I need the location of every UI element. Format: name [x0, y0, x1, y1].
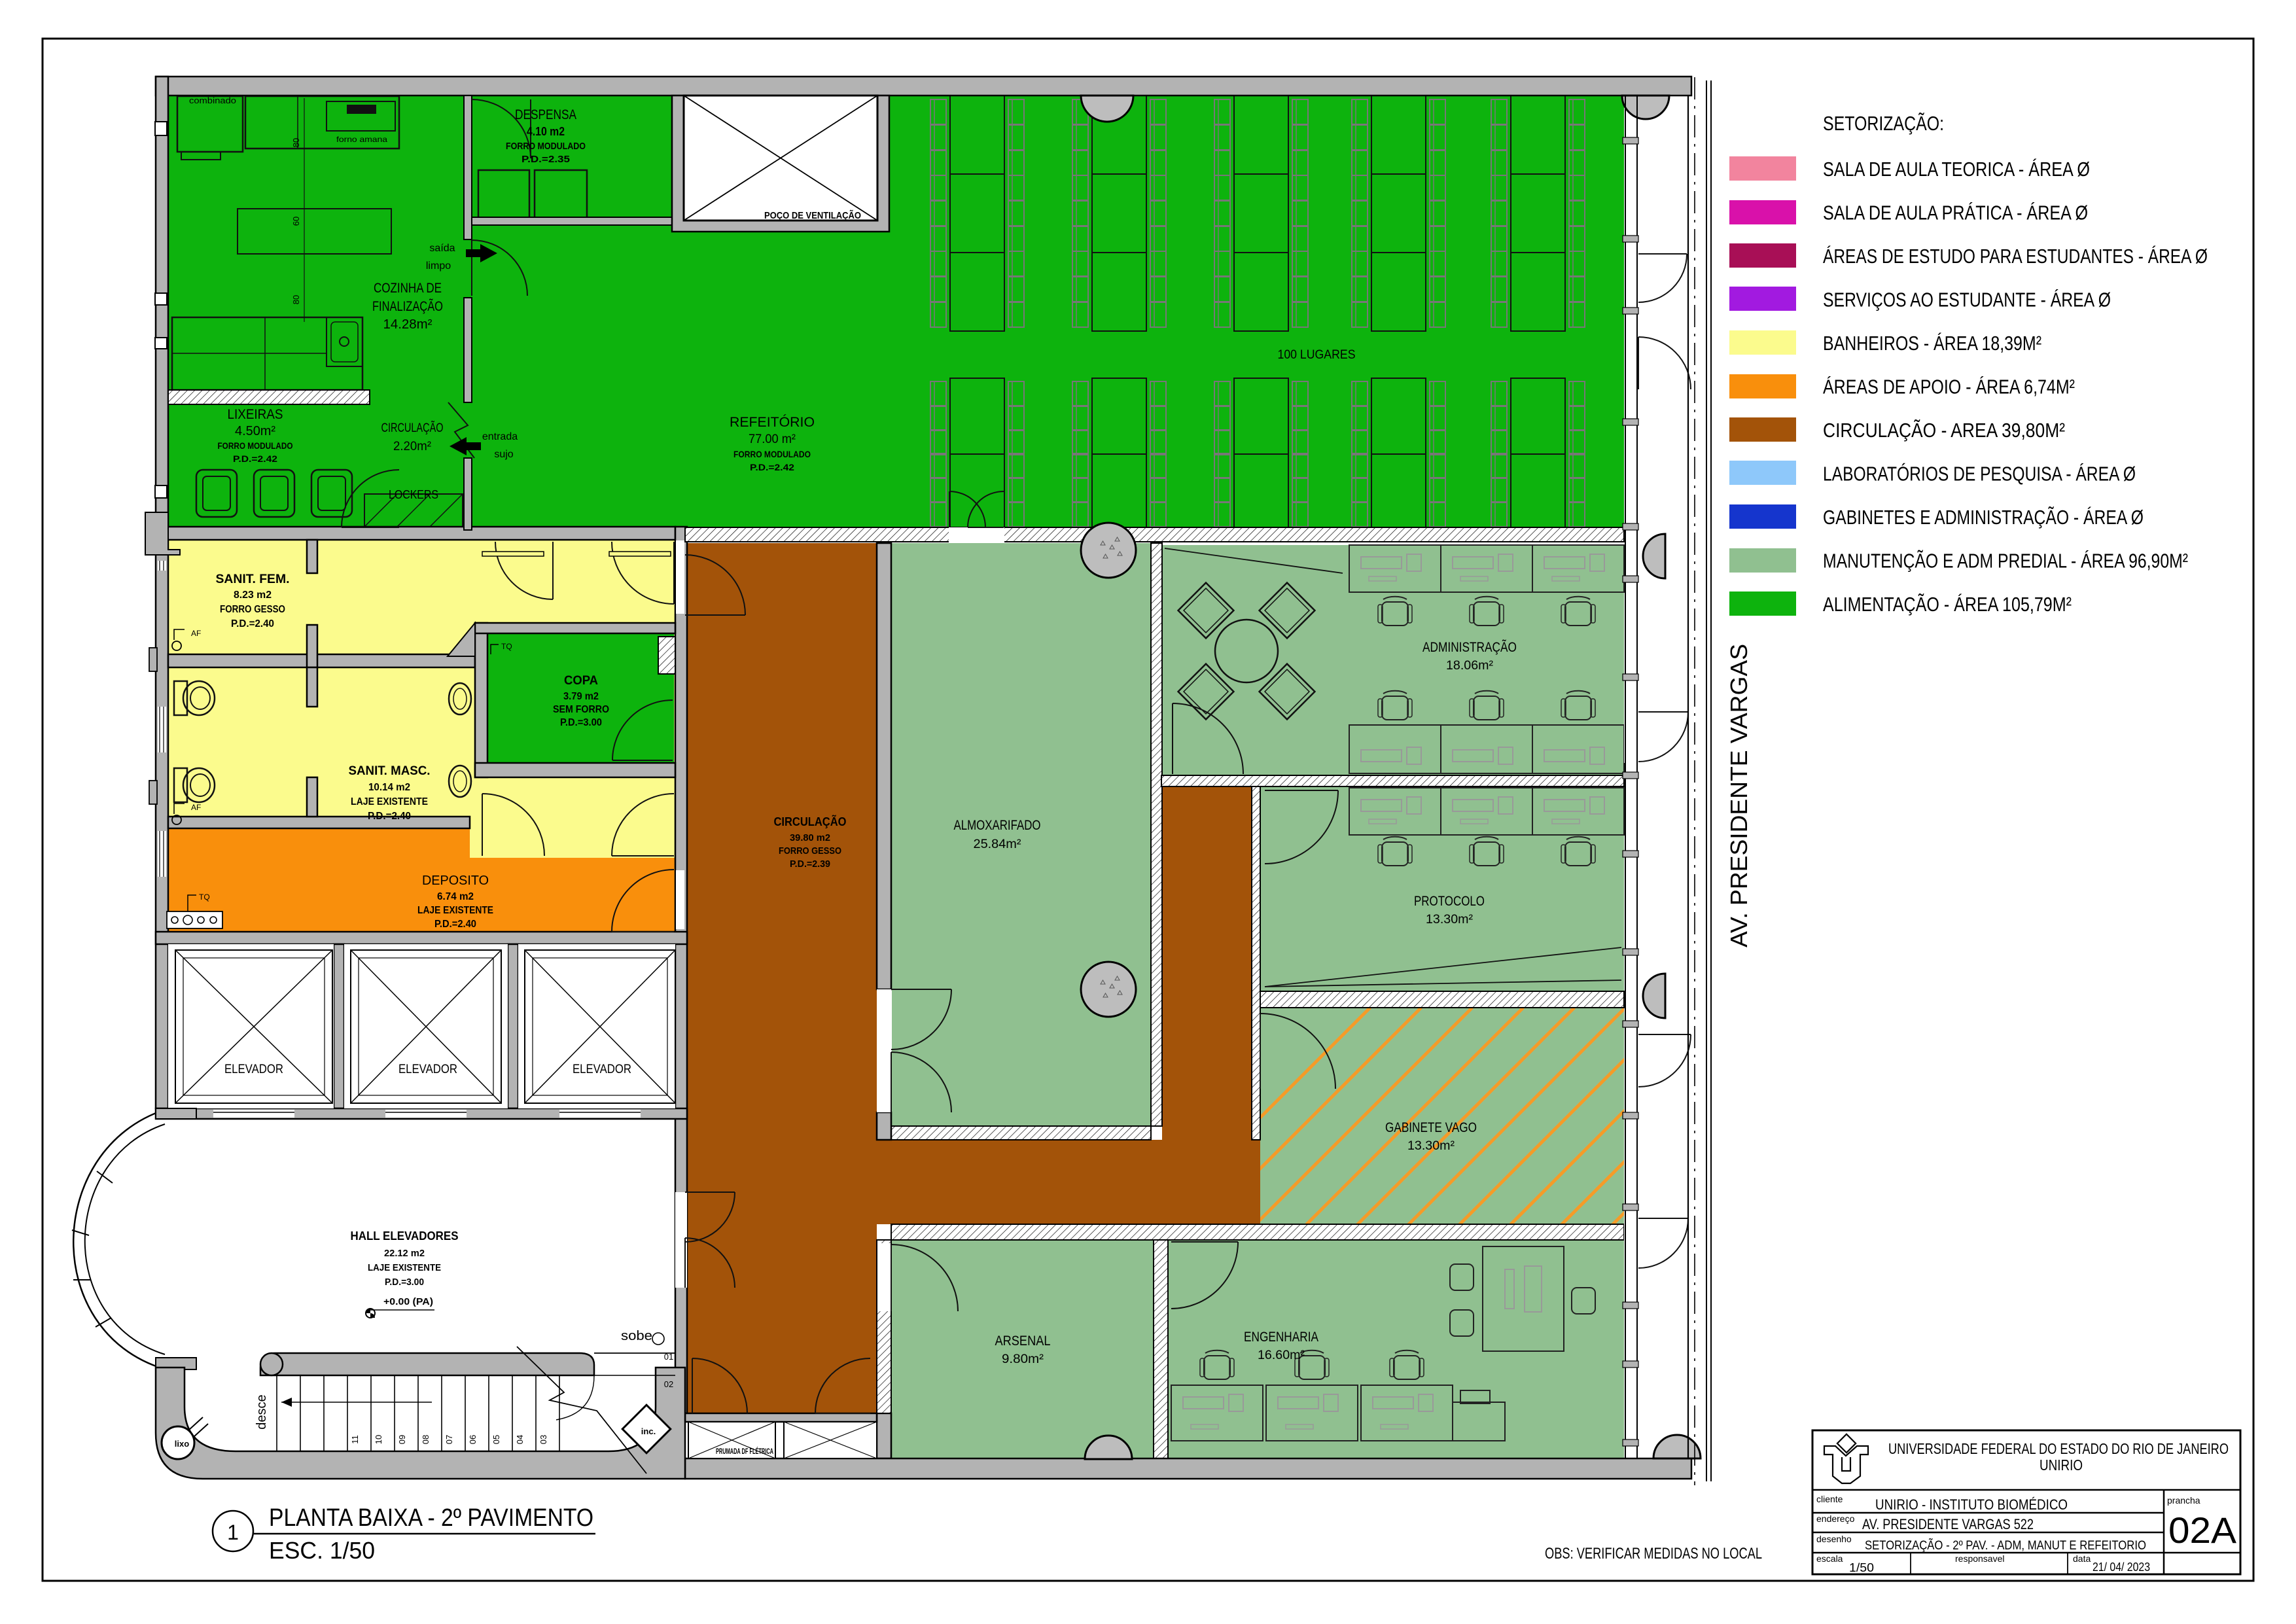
svg-text:06: 06 [468, 1435, 478, 1444]
svg-text:LIXEIRAS: LIXEIRAS [228, 407, 283, 422]
svg-text:11: 11 [350, 1435, 360, 1444]
svg-text:SANIT. FEM.: SANIT. FEM. [216, 573, 290, 586]
svg-text:P.D.=2.42: P.D.=2.42 [750, 462, 794, 472]
svg-text:6.74 m2: 6.74 m2 [437, 891, 474, 902]
svg-text:21/ 04/ 2023: 21/ 04/ 2023 [2093, 1561, 2150, 1574]
svg-text:25.84m²: 25.84m² [974, 838, 1021, 851]
svg-text:FORRO GESSO: FORRO GESSO [220, 604, 285, 615]
svg-text:3.79 m2: 3.79 m2 [563, 691, 599, 702]
svg-text:COPA: COPA [564, 674, 598, 688]
svg-text:SANIT. MASC.: SANIT. MASC. [349, 764, 431, 778]
svg-text:SETORIZAÇÃO:: SETORIZAÇÃO: [1823, 112, 1944, 135]
svg-text:ELEVADOR: ELEVADOR [573, 1063, 631, 1076]
svg-text:responsavel: responsavel [1955, 1553, 2005, 1564]
svg-text:13.30m²: 13.30m² [1426, 913, 1473, 927]
svg-text:ÁREAS DE ESTUDO PARA ESTUDANTE: ÁREAS DE ESTUDO PARA ESTUDANTES - ÁREA Ø [1823, 245, 2208, 268]
svg-text:cliente: cliente [1816, 1494, 1843, 1504]
svg-text:09: 09 [397, 1435, 407, 1444]
svg-text:forno amana: forno amana [336, 135, 387, 144]
svg-text:10: 10 [374, 1435, 383, 1444]
svg-text:P.D.=2.40: P.D.=2.40 [368, 811, 411, 822]
svg-text:sujo: sujo [494, 449, 513, 460]
svg-text:2.20m²: 2.20m² [393, 440, 431, 453]
svg-text:GABINETES E ADMINISTRAÇÃO - ÁR: GABINETES E ADMINISTRAÇÃO - ÁREA Ø [1823, 506, 2144, 529]
svg-text:AF: AF [191, 803, 201, 812]
svg-text:REFEITÓRIO: REFEITÓRIO [730, 415, 815, 430]
svg-text:SEM FORRO: SEM FORRO [553, 704, 609, 715]
svg-text:22.12 m2: 22.12 m2 [384, 1248, 425, 1259]
svg-text:LAJE EXISTENTE: LAJE EXISTENTE [417, 905, 493, 916]
svg-text:HALL ELEVADORES: HALL ELEVADORES [351, 1229, 459, 1243]
svg-text:08: 08 [421, 1435, 431, 1444]
svg-text:SALA DE AULA PRÁTICA - ÁREA Ø: SALA DE AULA PRÁTICA - ÁREA Ø [1823, 202, 2088, 224]
svg-text:saída: saída [429, 243, 455, 254]
svg-text:LABORATÓRIOS DE PESQUISA - ÁRE: LABORATÓRIOS DE PESQUISA - ÁREA Ø [1823, 463, 2136, 485]
svg-text:ENGENHARIA: ENGENHARIA [1244, 1330, 1318, 1345]
svg-text:P.D.=2.39: P.D.=2.39 [790, 858, 830, 870]
svg-text:CIRCULAÇÃO: CIRCULAÇÃO [774, 815, 847, 828]
svg-text:GABINETE VAGO: GABINETE VAGO [1385, 1120, 1477, 1135]
svg-text:PLANTA BAIXA - 2º PAVIMENTO: PLANTA BAIXA - 2º PAVIMENTO [269, 1504, 593, 1532]
svg-text:60: 60 [291, 217, 301, 226]
svg-text:P.D.=2.42: P.D.=2.42 [233, 453, 277, 464]
svg-text:UNIVERSIDADE FEDERAL DO ESTADO: UNIVERSIDADE FEDERAL DO ESTADO DO RIO DE… [1888, 1440, 2229, 1457]
svg-text:02: 02 [664, 1379, 673, 1389]
svg-text:03: 03 [539, 1435, 548, 1444]
svg-text:P.D.=2.40: P.D.=2.40 [434, 919, 476, 930]
svg-text:13.30m²: 13.30m² [1407, 1139, 1455, 1153]
svg-text:OBS: VERIFICAR MEDIDAS NO LOCA: OBS: VERIFICAR MEDIDAS NO LOCAL [1545, 1545, 1762, 1562]
svg-text:combinado: combinado [189, 96, 236, 105]
svg-text:FINALIZAÇÃO: FINALIZAÇÃO [372, 298, 443, 314]
svg-text:UNIRIO - INSTITUTO BIOMÉDICO: UNIRIO - INSTITUTO BIOMÉDICO [1875, 1496, 2068, 1513]
svg-text:LOCKERS: LOCKERS [389, 488, 438, 501]
svg-text:lixo: lixo [175, 1439, 189, 1449]
svg-text:P.D.=2.35: P.D.=2.35 [521, 154, 570, 165]
svg-text:endereço: endereço [1816, 1513, 1855, 1524]
svg-text:ESC. 1/50: ESC. 1/50 [269, 1537, 375, 1564]
svg-text:DESPENSA: DESPENSA [515, 107, 576, 122]
svg-text:ELEVADOR: ELEVADOR [398, 1063, 457, 1076]
svg-text:entrada: entrada [482, 431, 518, 442]
svg-text:1/50: 1/50 [1849, 1561, 1874, 1574]
svg-text:LAJE EXISTENTE: LAJE EXISTENTE [351, 796, 428, 807]
svg-text:ARSENAL: ARSENAL [995, 1333, 1051, 1349]
svg-text:SETORIZAÇÃO - 2º PAV. - ADM, M: SETORIZAÇÃO - 2º PAV. - ADM, MANUT E REF… [1865, 1538, 2146, 1553]
svg-text:POÇO DE VENTILAÇÃO: POÇO DE VENTILAÇÃO [764, 209, 861, 221]
svg-text:AV. PRESIDENTE VARGAS 522: AV. PRESIDENTE VARGAS 522 [1862, 1516, 2034, 1532]
svg-text:P.D.=3.00: P.D.=3.00 [385, 1277, 424, 1288]
svg-text:SALA DE AULA TEORICA - ÁREA Ø: SALA DE AULA TEORICA - ÁREA Ø [1823, 158, 2090, 181]
svg-text:1: 1 [227, 1521, 239, 1544]
svg-text:sobe: sobe [621, 1329, 652, 1343]
svg-text:18.06m²: 18.06m² [1446, 659, 1493, 673]
svg-text:10.14 m2: 10.14 m2 [368, 782, 410, 793]
svg-text:80: 80 [291, 138, 301, 147]
svg-text:+0.00 (PA): +0.00 (PA) [383, 1296, 433, 1307]
svg-text:limpo: limpo [426, 260, 451, 272]
svg-text:P.D.=3.00: P.D.=3.00 [560, 717, 602, 728]
svg-text:PROTOCOLO: PROTOCOLO [1414, 894, 1485, 909]
svg-text:CIRCULAÇÃO - AREA 39,80M²: CIRCULAÇÃO - AREA 39,80M² [1823, 419, 2065, 442]
svg-text:ADMINISTRAÇÃO: ADMINISTRAÇÃO [1422, 639, 1517, 655]
svg-text:14.28m²: 14.28m² [383, 317, 433, 332]
svg-text:inc.: inc. [641, 1426, 656, 1436]
svg-text:02A: 02A [2168, 1509, 2237, 1551]
svg-text:ELEVADOR: ELEVADOR [224, 1063, 283, 1076]
svg-text:AV. PRESIDENTE VARGAS: AV. PRESIDENTE VARGAS [1725, 644, 1752, 947]
svg-text:prancha: prancha [2167, 1495, 2200, 1506]
svg-text:4.10 m2: 4.10 m2 [527, 125, 565, 138]
svg-text:desce: desce [255, 1394, 269, 1429]
svg-text:16.60m²: 16.60m² [1258, 1349, 1305, 1362]
svg-text:39.80 m2: 39.80 m2 [790, 832, 830, 843]
svg-text:P.D.=2.40: P.D.=2.40 [231, 618, 274, 629]
svg-text:ALIMENTAÇÃO - ÁREA 105,79M²: ALIMENTAÇÃO - ÁREA 105,79M² [1823, 593, 2072, 616]
svg-text:escala: escala [1816, 1553, 1843, 1564]
svg-text:05: 05 [491, 1435, 501, 1444]
svg-text:TQ: TQ [501, 642, 512, 651]
svg-text:80: 80 [291, 295, 301, 304]
svg-text:BANHEIROS - ÁREA 18,39M²: BANHEIROS - ÁREA 18,39M² [1823, 332, 2041, 355]
svg-text:4.50m²: 4.50m² [235, 424, 275, 438]
svg-text:100 LUGARES: 100 LUGARES [1278, 348, 1356, 362]
svg-text:FORRO MODULADO: FORRO MODULADO [506, 141, 586, 152]
svg-text:01: 01 [664, 1352, 673, 1362]
svg-text:UNIRIO: UNIRIO [2040, 1456, 2083, 1474]
svg-text:DEPOSITO: DEPOSITO [422, 874, 489, 888]
svg-text:MANUTENÇÃO E ADM PREDIAL - ÁRE: MANUTENÇÃO E ADM PREDIAL - ÁREA 96,90M² [1823, 550, 2188, 573]
svg-text:04: 04 [515, 1435, 525, 1444]
svg-text:COZINHA DE: COZINHA DE [374, 281, 442, 296]
svg-text:PRUMADA DF FLÉTRICA: PRUMADA DF FLÉTRICA [716, 1446, 773, 1456]
svg-text:data: data [2073, 1553, 2091, 1564]
svg-text:TQ: TQ [199, 892, 210, 902]
svg-text:FORRO MODULADO: FORRO MODULADO [218, 440, 293, 451]
svg-text:CIRCULAÇÃO: CIRCULAÇÃO [381, 421, 444, 435]
svg-text:77.00 m²: 77.00 m² [749, 432, 796, 446]
svg-text:ALMOXARIFADO: ALMOXARIFADO [954, 818, 1041, 833]
svg-text:SERVIÇOS AO ESTUDANTE - ÁREA Ø: SERVIÇOS AO ESTUDANTE - ÁREA Ø [1823, 289, 2111, 311]
svg-text:desenho: desenho [1816, 1534, 1852, 1544]
svg-text:9.80m²: 9.80m² [1002, 1352, 1044, 1366]
svg-text:07: 07 [444, 1435, 454, 1444]
svg-text:ÁREAS DE APOIO - ÁREA 6,74M²: ÁREAS DE APOIO - ÁREA 6,74M² [1823, 376, 2075, 398]
svg-text:FORRO GESSO: FORRO GESSO [779, 845, 841, 856]
svg-text:FORRO MODULADO: FORRO MODULADO [733, 449, 811, 459]
svg-text:8.23 m2: 8.23 m2 [234, 590, 272, 601]
svg-text:LAJE EXISTENTE: LAJE EXISTENTE [368, 1262, 441, 1273]
svg-text:AF: AF [191, 629, 201, 638]
